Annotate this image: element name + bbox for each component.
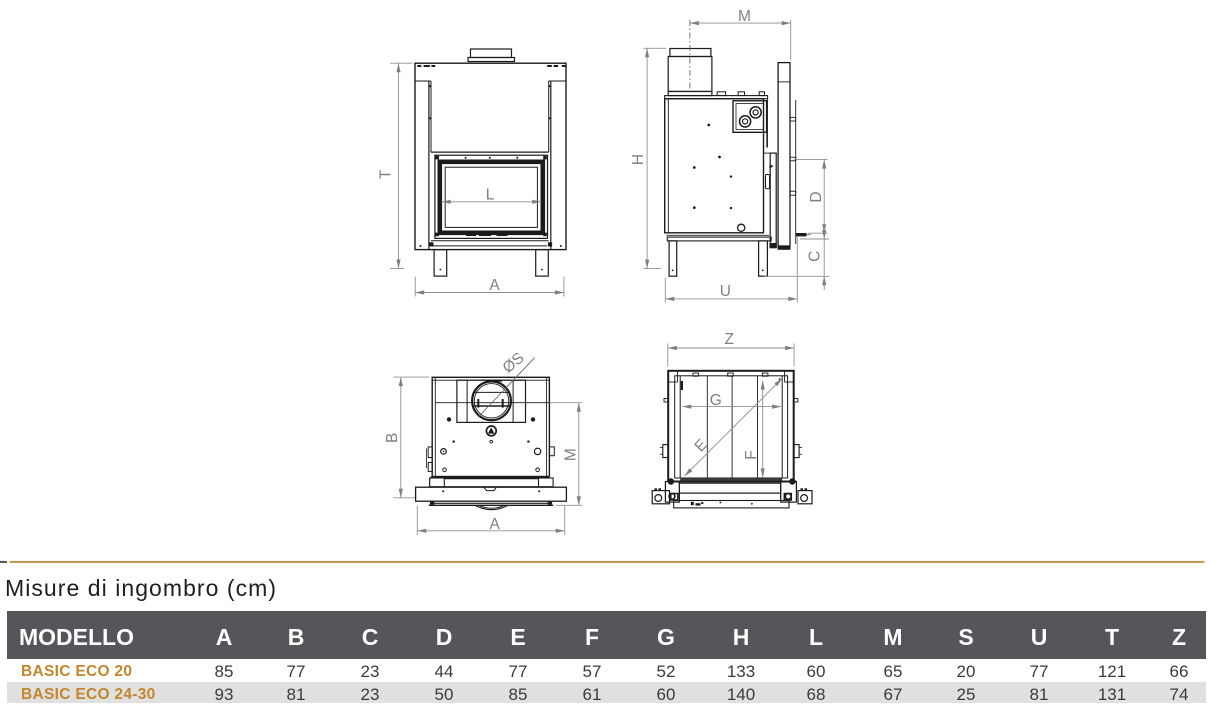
svg-text:M: M xyxy=(738,8,751,25)
svg-text:M: M xyxy=(562,448,579,461)
svg-text:A: A xyxy=(489,277,500,294)
svg-text:F: F xyxy=(743,450,760,459)
svg-text:H: H xyxy=(630,154,647,165)
svg-text:D: D xyxy=(808,191,825,202)
svg-text:B: B xyxy=(384,433,401,443)
svg-text:C: C xyxy=(807,251,824,262)
svg-text:G: G xyxy=(710,392,722,409)
svg-text:ØS: ØS xyxy=(500,349,528,376)
svg-text:T: T xyxy=(378,169,395,179)
svg-text:U: U xyxy=(720,283,731,300)
svg-text:A: A xyxy=(490,516,501,533)
svg-text:Z: Z xyxy=(724,331,733,348)
svg-text:L: L xyxy=(486,186,495,203)
